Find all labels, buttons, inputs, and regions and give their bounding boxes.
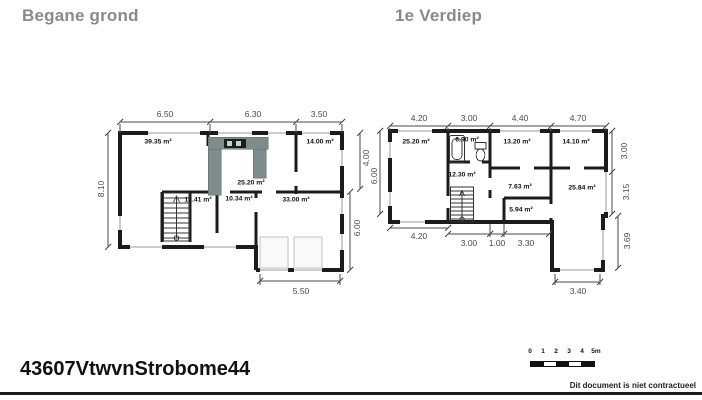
scale-bar-segment bbox=[531, 362, 544, 366]
room-area-label: 14.10 m² bbox=[562, 139, 589, 146]
dimension-label: 3.69 bbox=[622, 233, 632, 250]
scale-label: 2 bbox=[554, 348, 558, 355]
dimension-label: 8.10 bbox=[96, 181, 106, 198]
disclaimer-text: Dit document is niet contractueel bbox=[570, 381, 696, 390]
room-area-label: 6.90 m² bbox=[455, 137, 478, 144]
scale-bar-segment bbox=[581, 362, 594, 366]
first-dimension-lines bbox=[377, 123, 621, 285]
room-area-label: 25.20 m² bbox=[237, 180, 264, 187]
dimension-label: 3.50 bbox=[311, 109, 328, 119]
dimension-label: 3.40 bbox=[570, 286, 587, 296]
room-area-label: 33.00 m² bbox=[282, 197, 309, 204]
dimension-label: 4.40 bbox=[512, 113, 529, 123]
dimension-label: 3.00 bbox=[461, 238, 478, 248]
dimension-label: 1.00 bbox=[489, 238, 506, 248]
room-area-label: 39.35 m² bbox=[144, 139, 171, 146]
scale-bar-segment bbox=[544, 362, 557, 366]
scale-bar bbox=[530, 361, 595, 367]
dimension-label: 6.30 bbox=[245, 109, 262, 119]
room-area-label: 7.63 m² bbox=[508, 184, 531, 191]
floorplans-canvas bbox=[0, 0, 702, 400]
first-exterior-walls bbox=[388, 129, 608, 272]
scale-label: 0 bbox=[528, 348, 532, 355]
room-area-label: 25.84 m² bbox=[568, 185, 595, 192]
dimension-label: 6.50 bbox=[157, 109, 174, 119]
scale-label: 5m bbox=[591, 348, 600, 355]
room-area-label: 10.34 m² bbox=[225, 196, 252, 203]
dimension-label: 6.00 bbox=[352, 220, 362, 237]
dimension-label: 3.00 bbox=[461, 113, 478, 123]
scale-label: 1 bbox=[541, 348, 545, 355]
dimension-label: 4.20 bbox=[411, 113, 428, 123]
dimension-label: 3.15 bbox=[621, 184, 631, 201]
toilet-icon bbox=[475, 143, 486, 162]
dimension-label: 4.70 bbox=[570, 113, 587, 123]
dimension-label: 6.00 bbox=[369, 168, 379, 185]
room-area-label: 12.41 m² bbox=[184, 197, 211, 204]
dimension-label: 5.50 bbox=[293, 286, 310, 296]
footer-divider bbox=[0, 392, 702, 395]
scale-label: 4 bbox=[580, 348, 584, 355]
room-area-label: 5.94 m² bbox=[509, 207, 532, 214]
scale-label: 3 bbox=[567, 348, 571, 355]
scale-bar-segment bbox=[556, 362, 569, 366]
ground-interior-walls bbox=[162, 133, 342, 247]
garage-doors bbox=[260, 237, 322, 268]
dimension-label: 4.00 bbox=[361, 150, 371, 167]
floorplan-document: Begane grond 1e Verdiep bbox=[0, 0, 702, 400]
first-floor-plan bbox=[377, 123, 621, 285]
scale-bar-segment bbox=[569, 362, 582, 366]
document-reference: 43607VtwvnStrobome44 bbox=[20, 358, 250, 381]
staircase-icon bbox=[451, 187, 474, 222]
dimension-label: 3.30 bbox=[518, 238, 535, 248]
room-area-label: 14.00 m² bbox=[306, 139, 333, 146]
room-area-label: 13.20 m² bbox=[503, 139, 530, 146]
room-area-label: 12.30 m² bbox=[448, 172, 475, 179]
dimension-label: 4.20 bbox=[411, 231, 428, 241]
dimension-label: 3.00 bbox=[619, 143, 629, 160]
first-window-lines bbox=[390, 131, 606, 270]
room-area-label: 25.20 m² bbox=[402, 139, 429, 146]
